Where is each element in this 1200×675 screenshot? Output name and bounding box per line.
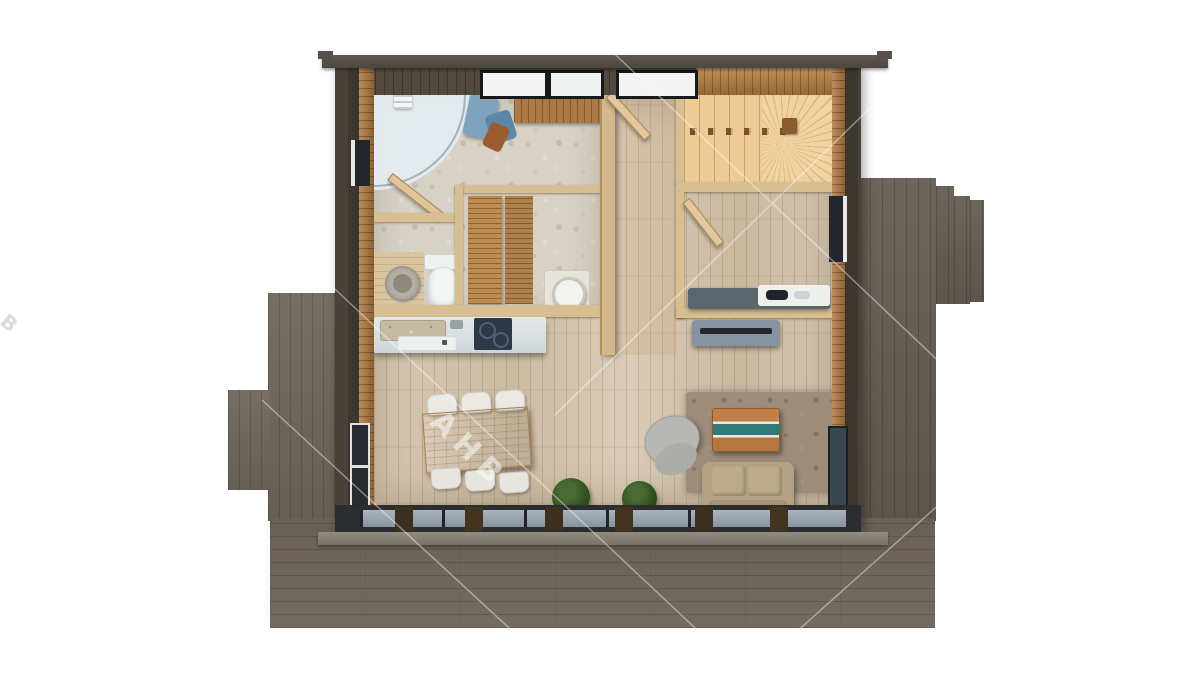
dining-table bbox=[422, 406, 532, 473]
threshold-beam-6 bbox=[770, 507, 788, 531]
threshold-beam-1 bbox=[395, 507, 413, 531]
stair-railing bbox=[690, 128, 788, 135]
sauna-wall-top bbox=[455, 185, 605, 193]
stair-bottom-wall bbox=[676, 182, 832, 192]
cooktop-burner-2 bbox=[493, 332, 509, 348]
top-window-2 bbox=[548, 70, 604, 99]
roof-fascia-tab-right bbox=[877, 51, 892, 59]
office-wall-left bbox=[676, 192, 684, 318]
right-deck-step-3 bbox=[970, 200, 984, 302]
threshold-beam-3 bbox=[545, 507, 563, 531]
left-window-bottom-mullion bbox=[350, 465, 370, 468]
left-window-top-frame bbox=[351, 140, 355, 186]
sofa-cushion-2 bbox=[748, 466, 782, 496]
right-window-office-frame bbox=[843, 196, 847, 262]
dining-chair-6 bbox=[498, 471, 529, 494]
sauna-bench-1 bbox=[468, 196, 502, 304]
right-deck-step-2 bbox=[954, 196, 970, 304]
desk-mouse bbox=[794, 291, 810, 299]
threshold-beam-2 bbox=[465, 507, 483, 531]
bottom-sill-bar bbox=[318, 532, 888, 545]
threshold-beam-5 bbox=[695, 507, 713, 531]
desk-keyboard bbox=[766, 290, 788, 300]
washbasin-bowl bbox=[393, 274, 412, 293]
right-deck-step-1 bbox=[936, 186, 954, 304]
dining-chair-5 bbox=[464, 469, 495, 492]
top-window-1 bbox=[480, 70, 548, 99]
office-wall-bottom bbox=[676, 308, 832, 318]
sauna-wall-left bbox=[455, 185, 463, 315]
floor-plan-render: АНВ АНВ bbox=[0, 0, 1200, 675]
sofa-cushion-1 bbox=[712, 466, 746, 496]
stair-wall-left bbox=[676, 85, 684, 185]
watermark-edge-text: АНВ bbox=[0, 278, 29, 342]
partition-stub-wall bbox=[374, 213, 460, 222]
kitchen-dividing-wall bbox=[374, 305, 600, 317]
threshold-beam-4 bbox=[615, 507, 633, 531]
left-deck-step bbox=[228, 390, 270, 490]
right-deck bbox=[858, 178, 936, 521]
stair-newel-post bbox=[782, 118, 797, 134]
dishwasher-control bbox=[442, 340, 447, 345]
sauna-bench-2 bbox=[505, 196, 533, 304]
roof-fascia-tab-left bbox=[318, 51, 333, 59]
central-partition-wall bbox=[600, 78, 615, 355]
kitchen-faucet bbox=[450, 320, 463, 329]
bathroom-bench bbox=[514, 99, 606, 123]
tv-screen bbox=[700, 328, 772, 334]
river-coffee-table bbox=[712, 408, 780, 452]
dining-chair-4 bbox=[430, 467, 461, 490]
stairs-straight-flight bbox=[684, 85, 762, 185]
top-window-3 bbox=[616, 70, 698, 99]
top-wall-wood-panel bbox=[696, 67, 846, 95]
roof-fascia bbox=[322, 55, 888, 68]
stairs-winder-steps bbox=[762, 85, 832, 185]
dishwasher-front bbox=[398, 336, 456, 350]
